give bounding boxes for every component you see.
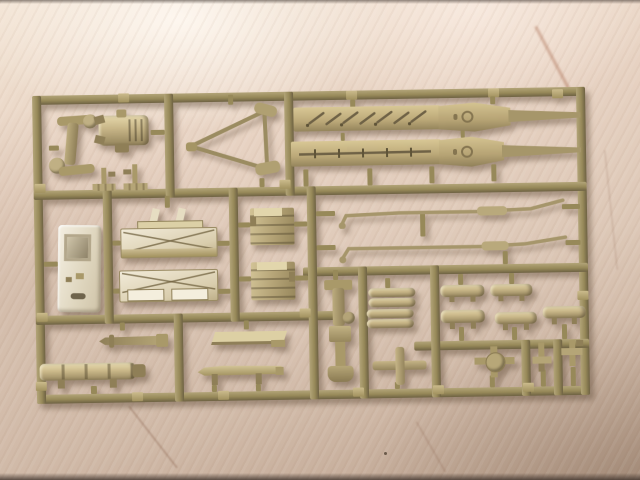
drum-cylinder-part (441, 309, 487, 329)
skid-body (198, 365, 282, 376)
drum-leg (470, 296, 475, 302)
skid-tail (276, 367, 284, 375)
drum (368, 288, 415, 298)
gate-stub (294, 221, 307, 226)
sprue-pad (34, 184, 45, 193)
rod-shape (335, 197, 567, 229)
sprue-pad (132, 392, 143, 401)
hub-disc (485, 352, 505, 372)
block-notch (289, 272, 295, 282)
tool-rod (291, 139, 441, 166)
axle-spine (64, 122, 79, 165)
drum-cylinder-part (490, 284, 534, 302)
gate-stub (295, 275, 308, 280)
gate-stub (317, 245, 336, 250)
drum-leg (524, 323, 529, 330)
runner-v5 (307, 186, 320, 399)
engine-pipe (116, 109, 126, 117)
photo-canvas (0, 0, 640, 480)
gate-stub (429, 166, 434, 183)
sprue-pad (118, 93, 129, 102)
sprue-pad (37, 313, 48, 322)
gate-stub (244, 320, 249, 329)
gate-stub (151, 130, 165, 135)
runner-v6 (358, 266, 369, 398)
mount-block (329, 326, 351, 342)
box-lip (122, 248, 217, 258)
drum-leg (471, 322, 476, 329)
drum-cylinder-part (543, 306, 588, 325)
gate-stub (44, 262, 58, 267)
hull-block-part (250, 208, 295, 246)
muffler-part (39, 358, 149, 391)
frame-bar-left (32, 96, 46, 404)
clamp-part (89, 168, 119, 196)
drum (495, 312, 537, 325)
door-handle (71, 293, 86, 299)
sprue-pad (346, 91, 357, 100)
bracket-bar (561, 348, 582, 355)
tray-part (209, 329, 289, 350)
engine-flap (94, 135, 106, 145)
runner-h2 (303, 263, 588, 277)
muffler-foot (110, 379, 117, 388)
tow-triangle-part (185, 102, 284, 184)
bracket-foot (539, 364, 545, 372)
gate-stub (112, 241, 120, 246)
clamp-nub (123, 169, 131, 174)
skid-leg (212, 374, 218, 385)
block-notch (250, 216, 256, 226)
clamp-stem (132, 164, 137, 184)
sprue-pad (552, 89, 563, 98)
fender-lower-part (291, 135, 581, 171)
drum (441, 309, 485, 323)
gate-stub (120, 322, 125, 330)
runner-v10 (174, 313, 184, 401)
clamp-nub (108, 172, 115, 177)
wood-speck (384, 452, 387, 455)
door-window (64, 234, 91, 261)
cross-vbar (395, 347, 405, 385)
barrel-block (156, 334, 168, 347)
sprue-pad (577, 291, 588, 300)
skid-leg (256, 373, 262, 384)
hull-block-part (251, 262, 296, 301)
mount-knob (343, 312, 355, 324)
sprue-pad (353, 388, 364, 397)
stowage-box-part (119, 269, 219, 303)
engine-ribs (124, 119, 146, 141)
gate-stub (239, 276, 251, 281)
gate-stub (385, 278, 390, 288)
gate-stub (458, 274, 463, 285)
fender-wide-end (438, 102, 510, 132)
runner-v1 (164, 94, 175, 198)
gate-stub (217, 241, 229, 246)
muffler-foot (58, 379, 65, 388)
door-detail (76, 273, 84, 279)
muffler-bands (41, 363, 133, 380)
engine-mount (115, 143, 129, 152)
drum-cylinder-part (495, 312, 539, 331)
drum-leg (450, 322, 455, 329)
fender-neck (508, 109, 580, 122)
mount-stem (335, 342, 345, 368)
wheel-hub-part (474, 346, 515, 378)
pioneer-tools (293, 105, 440, 131)
drum (543, 306, 586, 319)
drum-leg (449, 296, 454, 302)
clamp-part (121, 164, 150, 195)
gate-stub (333, 270, 338, 280)
gate-stub (316, 211, 335, 216)
barrel-rod-part (99, 330, 169, 352)
drum (367, 319, 414, 329)
drum-leg (519, 295, 524, 301)
paired-drums-part (368, 288, 418, 308)
drum-cylinder-part (440, 284, 486, 302)
gate-stub (509, 273, 514, 284)
drum (367, 309, 414, 319)
t-bracket-part (532, 342, 552, 371)
rod-shape (335, 232, 569, 264)
clamp-foot (123, 183, 147, 190)
drum-leg (503, 323, 508, 330)
skid-plate-part (198, 363, 285, 387)
tray-flap (271, 340, 285, 347)
runner-v4 (229, 188, 240, 322)
gate-stub (367, 168, 372, 185)
photo-edge (0, 473, 640, 480)
gate-stub (238, 222, 250, 227)
clamp-foot (93, 184, 116, 191)
drum (440, 284, 484, 297)
fender-upper-part (293, 101, 580, 136)
drum (368, 298, 415, 308)
sprue-pad (523, 383, 534, 392)
gate-stub (562, 324, 567, 339)
triangle-rods (185, 102, 284, 184)
fender-neck (502, 144, 581, 157)
cross-part (372, 346, 427, 385)
gate-stub (218, 289, 230, 294)
sprue (30, 85, 592, 405)
gate-stub (541, 369, 546, 386)
door-detail (66, 277, 72, 282)
sprue-pad (300, 308, 311, 317)
embossed-dot-mark (453, 149, 457, 155)
block-top (257, 262, 287, 270)
photo-edge (0, 0, 640, 4)
drum (490, 284, 532, 297)
embossed-dot-mark (453, 114, 457, 120)
drum-leg (552, 317, 557, 324)
runner-h3 (36, 311, 336, 325)
paired-drums-part (367, 309, 417, 329)
engine-block-part (94, 109, 153, 154)
drum-leg (572, 317, 577, 324)
mount-foot (328, 366, 354, 382)
box-panel (127, 289, 164, 302)
gate-stub (571, 367, 576, 386)
sprue-pad (218, 391, 229, 400)
gate-stub (303, 169, 308, 186)
runner-v3 (103, 190, 114, 324)
muffler-cap (132, 364, 145, 377)
tow-rod-part (335, 197, 567, 229)
gate-stub (459, 327, 464, 341)
drum-leg (498, 295, 503, 301)
stowage-box-part (120, 227, 217, 259)
bracket-nub (576, 340, 583, 346)
sprue-pad (433, 385, 444, 394)
block-top (254, 208, 282, 216)
gate-stub (165, 196, 170, 208)
t-bracket-part (561, 340, 583, 368)
tow-rod-part (335, 232, 569, 264)
barrel-ring (109, 335, 114, 348)
door-panel-part (57, 225, 101, 312)
mount-assembly-part (322, 280, 358, 387)
box-panel (171, 288, 208, 301)
